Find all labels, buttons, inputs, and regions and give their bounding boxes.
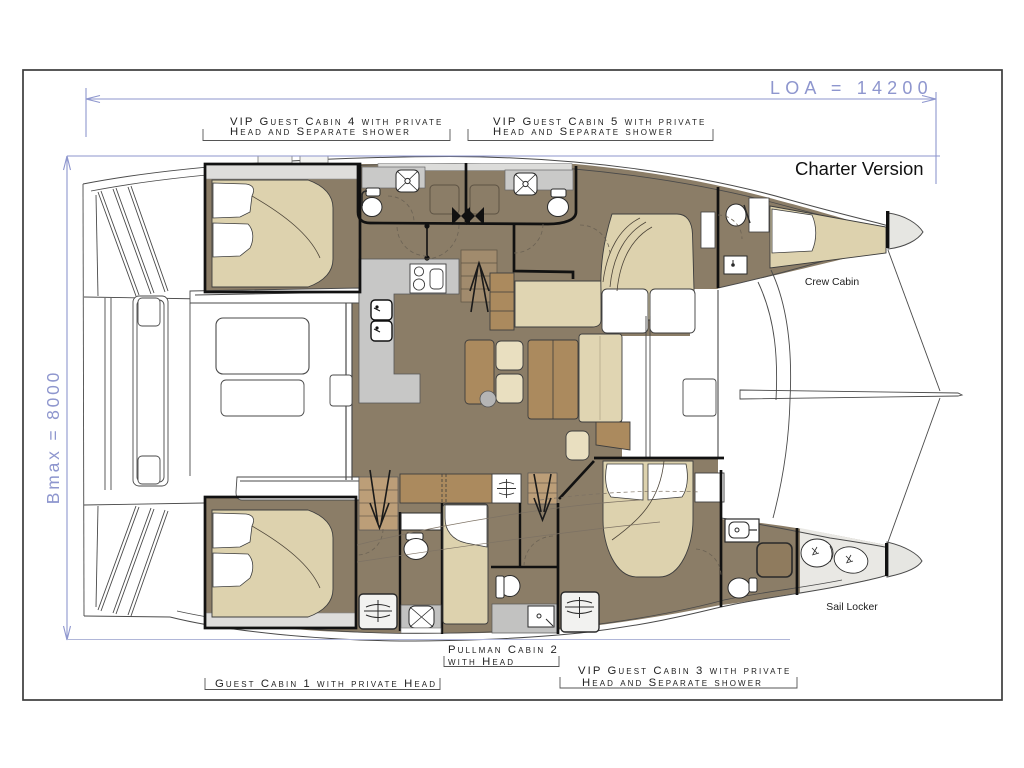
svg-text:Charter Version: Charter Version: [795, 158, 924, 179]
svg-text:Crew Cabin: Crew Cabin: [805, 277, 860, 288]
svg-text:VIP Guest Cabin 3 with private: VIP Guest Cabin 3 with private: [578, 665, 791, 677]
svg-text:Head and Separate shower: Head and Separate shower: [493, 126, 674, 138]
svg-text:Head and Separate shower: Head and Separate shower: [230, 126, 411, 138]
svg-text:Head and Separate shower: Head and Separate shower: [582, 677, 763, 689]
svg-text:Pullman Cabin 2: Pullman Cabin 2: [448, 644, 559, 656]
svg-text:Sail Locker: Sail Locker: [826, 602, 878, 613]
svg-text:Bmax = 8000: Bmax = 8000: [43, 370, 63, 504]
svg-text:Guest Cabin 1 with private Hea: Guest Cabin 1 with private Head: [215, 678, 437, 690]
svg-text:LOA = 14200: LOA = 14200: [770, 78, 933, 98]
